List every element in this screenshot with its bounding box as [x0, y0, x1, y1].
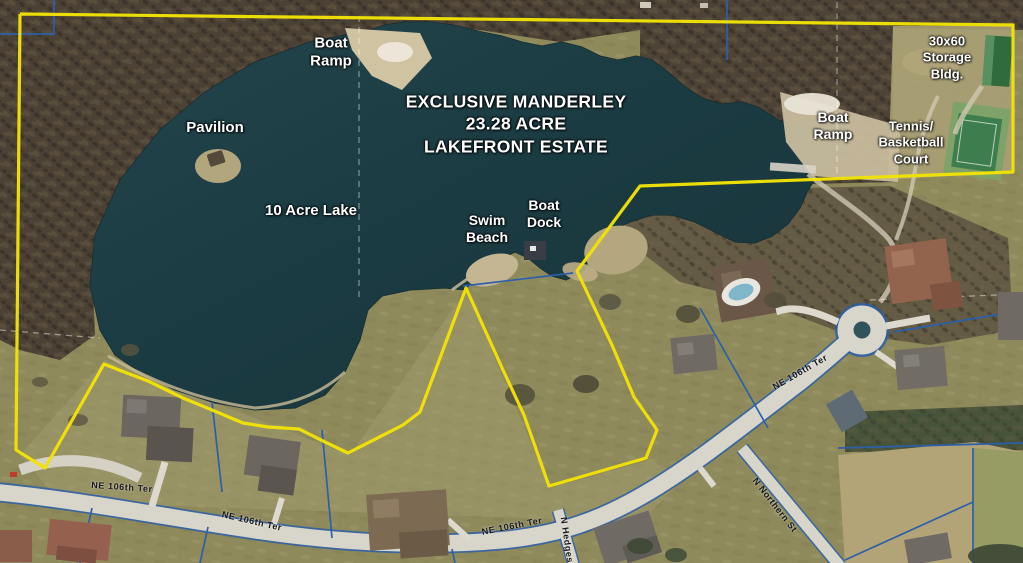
- boat-shape: [530, 246, 536, 251]
- structure: [700, 3, 708, 8]
- label-boat-ramp-east: Boat Ramp: [814, 109, 853, 143]
- boat-ramp-west-pad: [377, 42, 413, 62]
- structure: [640, 2, 651, 8]
- label-tennis-court: Tennis/ Basketball Court: [878, 119, 943, 168]
- culdesac-island: [854, 322, 871, 339]
- house: [366, 489, 450, 560]
- house-with-pool: [712, 258, 777, 323]
- aerial-property-map: Boat Ramp Pavilion EXCLUSIVE MANDERLEY 2…: [0, 0, 1023, 563]
- car-shape: [10, 472, 17, 477]
- label-boat-dock: Boat Dock: [527, 197, 561, 231]
- label-pavilion: Pavilion: [186, 119, 244, 137]
- aerial-imagery: [0, 0, 1023, 563]
- house: [670, 334, 718, 374]
- label-boat-ramp-west: Boat Ramp: [310, 35, 352, 72]
- house: [998, 292, 1023, 340]
- label-storage-bldg: 30x60 Storage Bldg.: [923, 34, 971, 83]
- label-swim-beach: Swim Beach: [466, 212, 508, 246]
- house: [894, 346, 947, 390]
- label-lake: 10 Acre Lake: [265, 202, 357, 220]
- label-estate-title: EXCLUSIVE MANDERLEY 23.28 ACRE LAKEFRONT…: [406, 90, 627, 157]
- house: [0, 530, 32, 562]
